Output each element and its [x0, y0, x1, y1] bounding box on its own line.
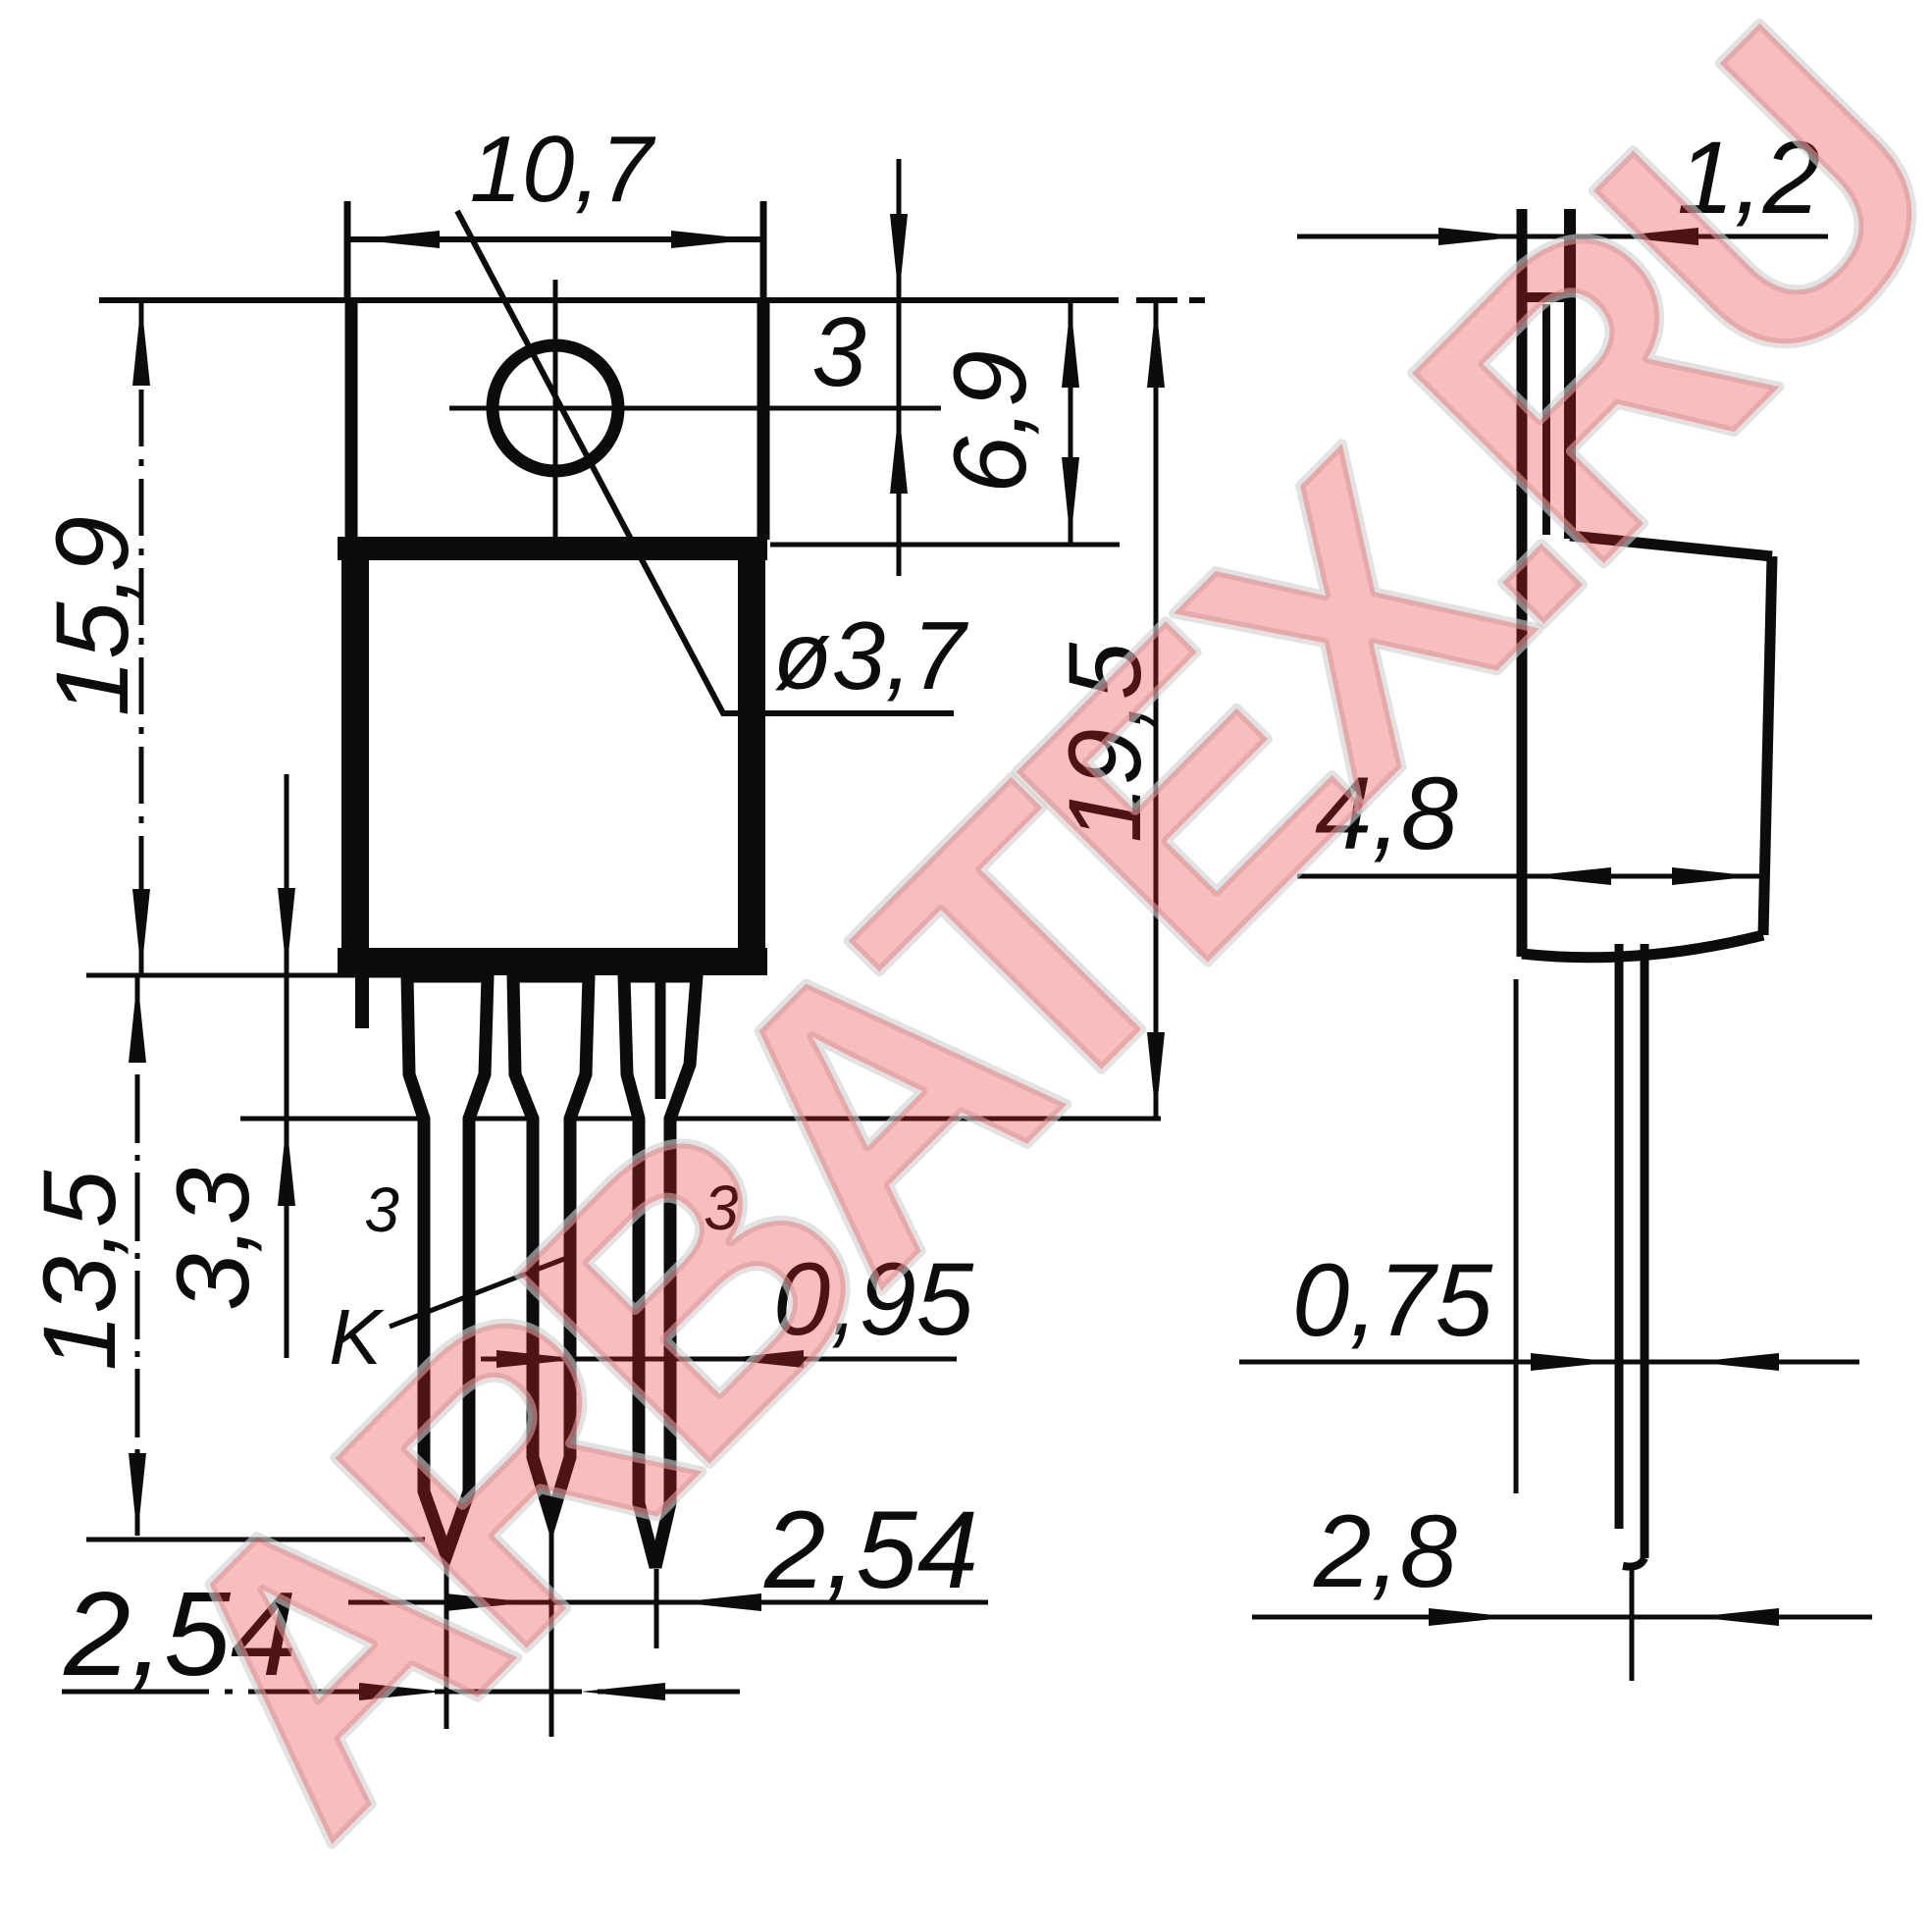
- svg-text:3,3: 3,3: [156, 1168, 271, 1311]
- svg-text:3: 3: [364, 1175, 399, 1245]
- svg-text:0,75: 0,75: [1292, 1243, 1493, 1358]
- svg-text:2,8: 2,8: [1313, 1494, 1457, 1609]
- svg-text:13,5: 13,5: [23, 1170, 137, 1371]
- svg-text:2,54: 2,54: [763, 1488, 978, 1611]
- svg-text:15,9: 15,9: [35, 516, 150, 716]
- svg-text:10,7: 10,7: [470, 117, 656, 222]
- svg-text:6,9: 6,9: [933, 350, 1048, 494]
- svg-text:ø3,7: ø3,7: [773, 601, 969, 709]
- svg-text:3: 3: [811, 297, 866, 407]
